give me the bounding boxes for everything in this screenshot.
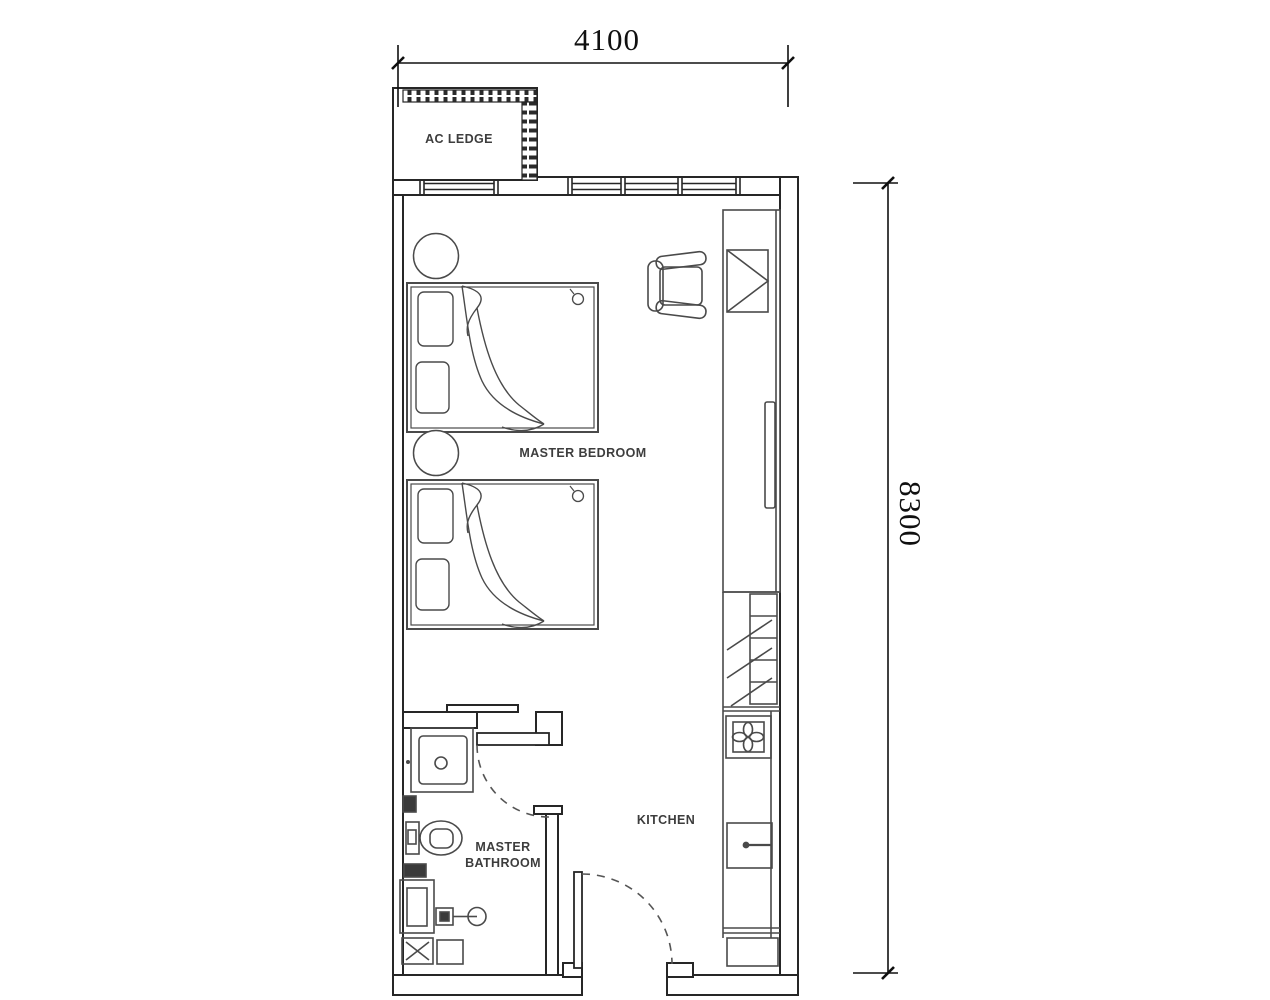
- entrance-door-swing: [582, 874, 672, 964]
- floor-plan-drawing: [0, 0, 1270, 1000]
- room-label-master-bathroom-line2: BATHROOM: [433, 855, 573, 871]
- base-cabinet: [727, 938, 778, 966]
- bathroom-kitchen-divider-wall: [546, 806, 558, 975]
- armchair: [648, 251, 707, 319]
- dimension-height-label: 8300: [892, 459, 928, 569]
- entrance-door-leaf: [574, 872, 582, 968]
- bedside-table-1: [414, 234, 459, 279]
- bathroom-bulkhead: [447, 705, 518, 712]
- room-label-ac-ledge: AC LEDGE: [399, 131, 519, 147]
- bathroom-top-wall: [403, 712, 477, 728]
- divider-wall-cap: [534, 806, 562, 814]
- dimension-width-label: 4100: [547, 22, 667, 58]
- dimension-height: [853, 177, 898, 979]
- room-label-master-bedroom: MASTER BEDROOM: [503, 445, 663, 461]
- floor-trap: [402, 938, 433, 964]
- kitchen-sink: [727, 823, 772, 868]
- floor-plan: 4100 8300 AC LEDGE MASTER BEDROOM KITCHE…: [0, 0, 1270, 1000]
- bottom-wall-left: [393, 975, 582, 995]
- entrance-door: [574, 872, 672, 968]
- single-bed-1: [407, 283, 598, 432]
- bathroom-door: [477, 733, 549, 817]
- tall-cabinet-fridge: [727, 594, 777, 706]
- wardrobe: [723, 210, 780, 592]
- single-bed-2: [407, 480, 598, 629]
- kitchen-counter: [723, 592, 780, 966]
- bathroom-door-leaf: [477, 733, 549, 745]
- left-wall: [393, 88, 403, 995]
- towel-rail: [403, 796, 416, 812]
- ac-ledge-louvre-right: [522, 102, 537, 180]
- room-label-master-bathroom-line1: MASTER: [433, 839, 573, 855]
- shower-head: [436, 908, 486, 926]
- room-label-kitchen: KITCHEN: [606, 812, 726, 828]
- accessory-box: [404, 864, 426, 877]
- room-label-master-bathroom: MASTER BATHROOM: [433, 839, 573, 871]
- vanity-basin: [406, 728, 473, 792]
- kitchen-wall-return: [667, 963, 693, 977]
- shower-kerb: [437, 940, 463, 964]
- right-wall: [780, 177, 798, 995]
- ac-ledge-louvre-top: [403, 90, 537, 102]
- shower-area: [400, 880, 486, 964]
- bedside-table-2: [414, 431, 459, 476]
- cooker-hob: [726, 716, 771, 758]
